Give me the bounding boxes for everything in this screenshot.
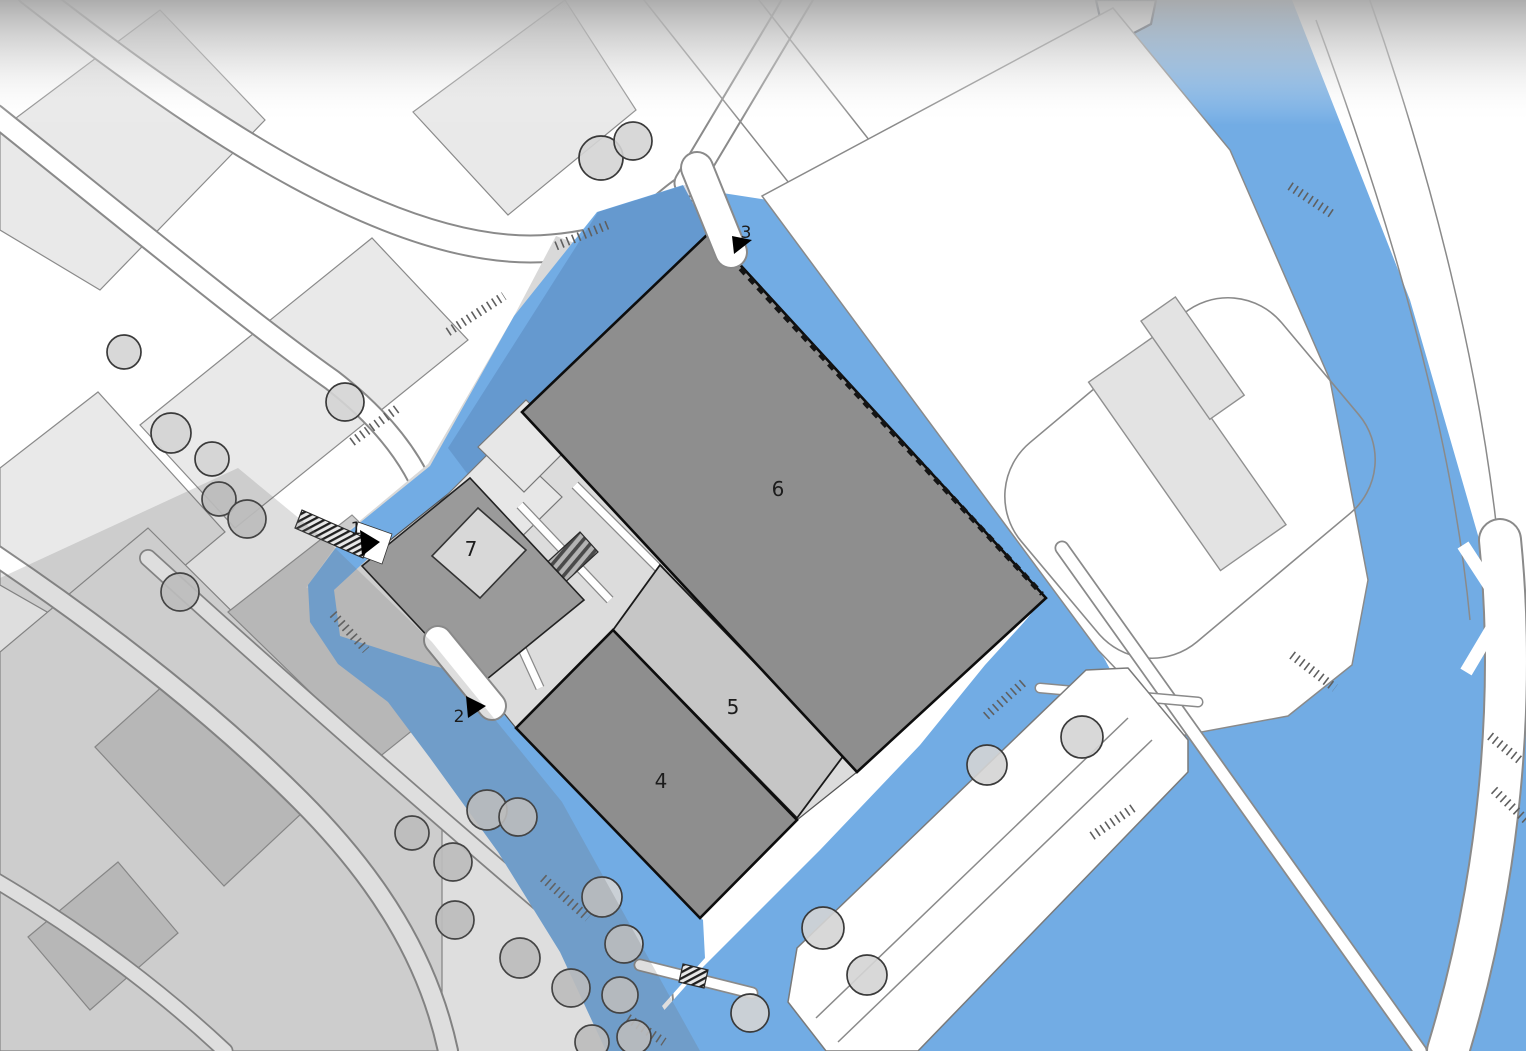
tree: [326, 383, 364, 421]
tree: [151, 413, 191, 453]
tree: [731, 994, 769, 1032]
tree: [802, 907, 844, 949]
entrance-2-label: 2: [454, 707, 465, 727]
tree: [195, 442, 229, 476]
building-4-label: 4: [655, 769, 668, 793]
tree: [1061, 716, 1103, 758]
fog-overlay: [0, 0, 1526, 125]
building-7-label: 7: [465, 537, 478, 561]
tree: [107, 335, 141, 369]
tree: [614, 122, 652, 160]
entrance-1-label: 1: [351, 519, 362, 539]
building-5-label: 5: [727, 695, 740, 719]
entrance-3-label: 3: [741, 223, 752, 243]
site-plan-map: 1 2 3 4 5 6 7: [0, 0, 1526, 1051]
tree: [967, 745, 1007, 785]
building-6-label: 6: [772, 477, 785, 501]
tree: [847, 955, 887, 995]
